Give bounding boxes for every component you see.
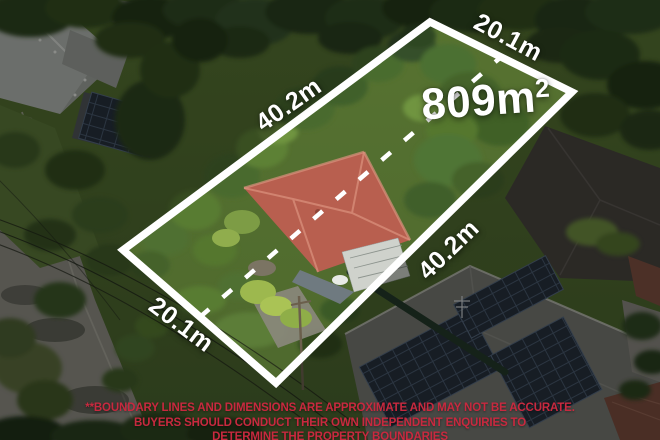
disclaimer: **BOUNDARY LINES AND DIMENSIONS ARE APPR… <box>0 401 660 440</box>
disclaimer-line-3: DETERMINE THE PROPERTY BOUNDARIES <box>0 430 660 440</box>
disclaimer-line-1: **BOUNDARY LINES AND DIMENSIONS ARE APPR… <box>0 401 660 416</box>
aerial-photo <box>0 0 660 440</box>
land-area-superscript: 2 <box>534 73 551 104</box>
land-area-label: 809m2 <box>420 72 553 131</box>
listing-photo-stage: 40.2m 20.1m 40.2m 20.1m 809m2 **BOUNDARY… <box>0 0 660 440</box>
disclaimer-line-2: BUYERS SHOULD CONDUCT THEIR OWN INDEPEND… <box>0 416 660 431</box>
land-area-value: 809m <box>420 73 538 130</box>
